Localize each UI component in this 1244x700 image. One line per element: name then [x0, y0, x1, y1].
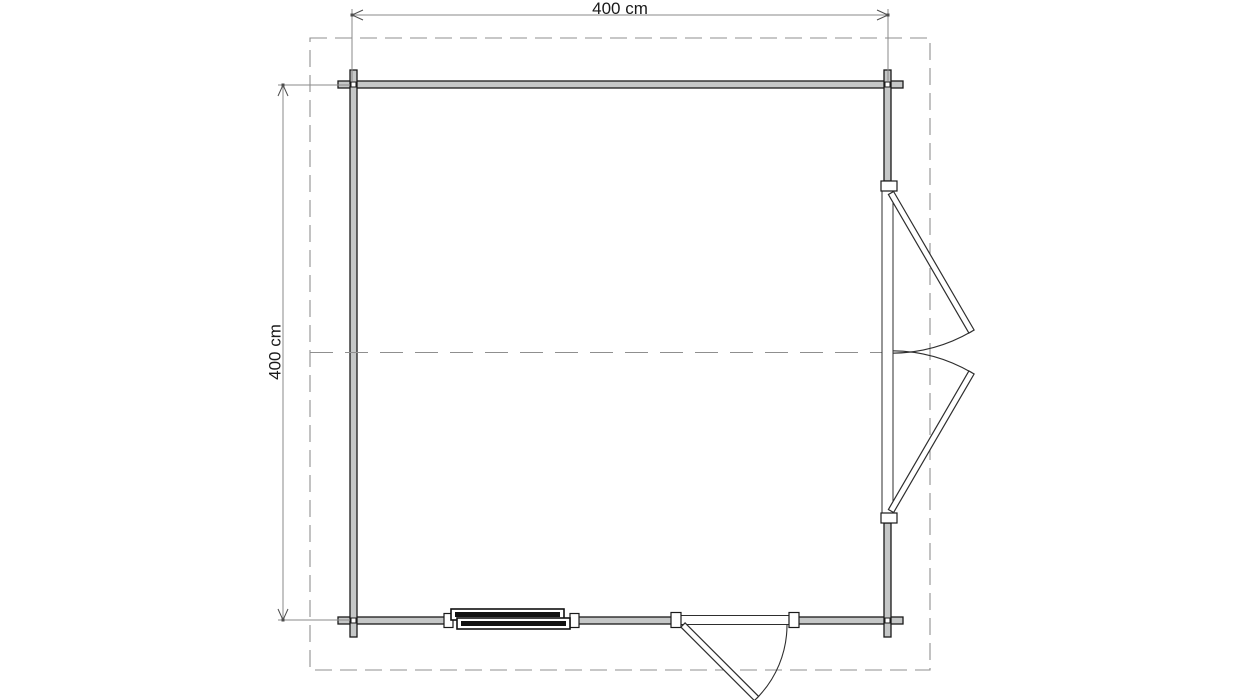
plan-drawing — [0, 0, 1244, 700]
dimension-arrow-dot — [282, 84, 285, 87]
floor-plan: 400 cm 400 cm — [0, 0, 1244, 700]
double-door-right-swing-arc — [893, 332, 972, 354]
dimension-height-label: 400 cm — [267, 324, 284, 380]
wall-top — [338, 81, 903, 88]
roof-overhang-outline — [310, 38, 930, 670]
corner-joint — [351, 618, 356, 623]
corner-joint — [351, 82, 356, 87]
double-door-right-swing-arc — [893, 351, 972, 373]
wall-left — [350, 70, 357, 637]
corner-joint — [885, 82, 890, 87]
window-jamb — [570, 614, 579, 628]
single-door-bottom-leaf — [681, 623, 759, 700]
dimension-arrow-dot — [887, 14, 890, 17]
double-door-right-jamb — [881, 513, 897, 523]
double-door-right-leaf — [888, 192, 974, 334]
window-glazing-bar — [461, 621, 566, 626]
double-door-right-leaf — [888, 371, 974, 513]
single-door-bottom-jamb — [789, 613, 799, 628]
corner-joint — [885, 618, 890, 623]
wall-bottom-mid — [576, 617, 681, 624]
double-door-right-jamb — [881, 181, 897, 191]
dimension-arrow-dot — [351, 14, 354, 17]
double-door-right-frame — [882, 191, 893, 513]
dimension-arrow-dot — [282, 619, 285, 622]
dimension-width-label: 400 cm — [592, 0, 648, 17]
single-door-bottom-frame — [681, 616, 789, 625]
single-door-bottom-jamb — [671, 613, 681, 628]
single-door-bottom-swing-arc — [757, 625, 788, 699]
window-glazing-bar — [455, 612, 560, 617]
